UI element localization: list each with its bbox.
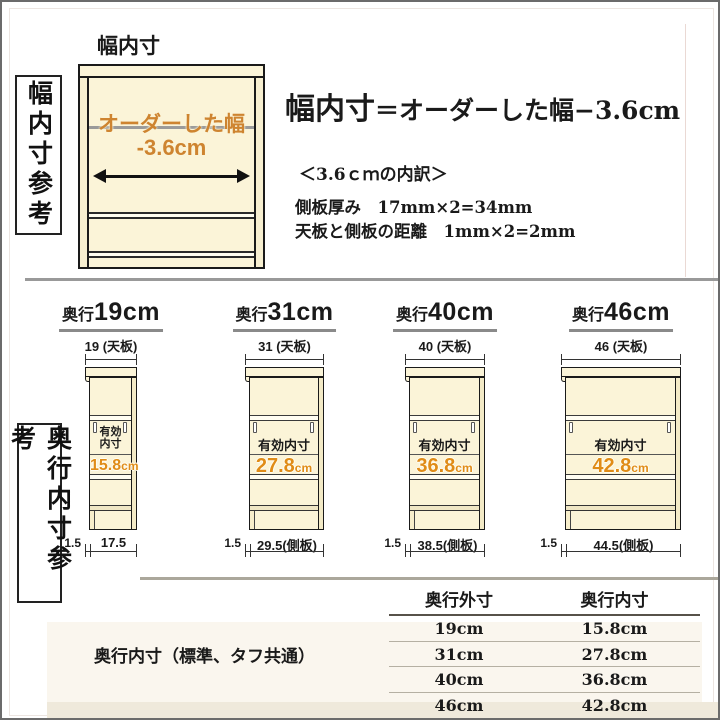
cabinet-title-prefix: 奥行 <box>236 307 268 324</box>
shelf <box>566 415 675 421</box>
cabinet-title-size: 31cm <box>268 298 334 326</box>
shelf <box>566 474 675 480</box>
bottom-dimension: 1.5 29.5(側板) <box>245 534 324 556</box>
top-board <box>85 367 137 377</box>
table-cell: 40cm <box>389 667 529 693</box>
base-front-strip <box>566 511 571 529</box>
front-gap-value: 1.5 <box>216 536 241 550</box>
top-section-right-line <box>685 24 686 277</box>
value: 15.8 <box>90 457 121 474</box>
dim-tick <box>561 544 562 557</box>
bottom-dim-line <box>85 551 137 552</box>
bottom-board <box>410 505 479 511</box>
bottom-dim-line <box>405 551 485 552</box>
depth-cabinet-31cm: 奥行31cm 31 (天板) 有効内寸 27.8cm 1.5 29.5(側板) <box>245 298 324 556</box>
dim-tick <box>136 544 137 557</box>
breakdown-heading: ＜3.6ｃｍの内訳＞ <box>299 160 448 185</box>
width-reference-side-label: 幅内寸参考 <box>15 75 62 235</box>
table-cell: 19cm <box>389 616 529 642</box>
back-panel <box>479 378 484 529</box>
top-board <box>405 367 485 377</box>
bottom-dimension: 1.5 17.5 <box>85 534 137 556</box>
top-dim-tick <box>85 354 86 365</box>
dim-tick <box>405 544 406 557</box>
top-board-dim-label: 19 (天板) <box>85 336 138 355</box>
front-cabinet-top-board <box>80 66 263 78</box>
cabinet-body: 有効内寸 36.8cm <box>409 377 485 530</box>
cabinet-title-prefix: 奥行 <box>572 307 604 324</box>
effective-inner-label: 有効内寸 <box>250 435 318 454</box>
shelf-peg-icon <box>310 422 314 433</box>
front-cabinet-shelf-band-1 <box>89 212 254 219</box>
table-cell: 36.8cm <box>529 667 700 693</box>
front-gap-value: 1.5 <box>56 536 81 550</box>
table-header-inner-depth: 奥行内寸 <box>529 586 700 616</box>
top-dim-tick <box>405 354 406 365</box>
cabinet-title-prefix: 奥行 <box>62 307 94 324</box>
shelf-peg-icon <box>253 422 257 433</box>
bottom-board <box>566 505 675 511</box>
furniture-spec-sheet: 幅内寸参考 幅内寸 オーダーした幅 -3.6cm 幅内寸＝オーダーした幅−3.6… <box>0 0 720 720</box>
cabinet-title: 奥行40cm <box>393 298 497 332</box>
cabinet-title-prefix: 奥行 <box>396 307 428 324</box>
shelf-peg-icon <box>667 422 671 433</box>
cabinet-title-size: 46cm <box>604 298 670 326</box>
double-arrow <box>93 169 250 183</box>
top-dim-tick <box>561 354 562 365</box>
top-board <box>561 367 681 377</box>
table-separator <box>140 577 719 580</box>
unit: cm <box>121 459 138 473</box>
depth-reference-side-label: 奥行内寸参考 <box>17 423 62 603</box>
table-cell: 27.8cm <box>529 642 700 668</box>
breakdown-top-board-line: 天板と側板の距離 1mm×2=2mm <box>295 218 575 242</box>
front-cabinet-shelf-band-2 <box>89 251 254 258</box>
front-gap-value: 1.5 <box>532 536 557 550</box>
ordered-width-label: オーダーした幅 <box>89 108 254 138</box>
shelf-peg-icon <box>471 422 475 433</box>
shelf-peg-icon <box>569 422 573 433</box>
back-panel <box>318 378 323 529</box>
shelf <box>410 474 479 480</box>
top-board-dim-label: 31 (天板) <box>258 336 311 355</box>
bottom-board <box>250 505 318 511</box>
top-dim-line <box>405 359 485 360</box>
shelf <box>250 415 318 421</box>
top-dim-tick <box>245 354 246 365</box>
top-dim-tick <box>323 354 324 365</box>
dim-tick <box>680 544 681 557</box>
base-front-strip <box>250 511 255 529</box>
effective-inner-label: 有効内寸 <box>410 435 479 454</box>
effective-inner-label: 有効 内寸 <box>90 426 131 450</box>
top-dim-tick <box>484 354 485 365</box>
depth-cabinet-19cm: 奥行19cm 19 (天板) 有効 内寸 15.8cm 1.5 17.5 <box>85 298 137 556</box>
dim-tick <box>250 544 251 557</box>
top-dim-line <box>561 359 681 360</box>
breakdown-side-board-line: 側板厚み 17mm×2=34mm <box>295 194 532 218</box>
base-front-strip <box>90 511 95 529</box>
formula-rhs: オーダーした幅−3.6cm <box>399 96 680 125</box>
front-cabinet-right-side-board <box>254 78 263 267</box>
cabinet-title: 奥行46cm <box>569 298 673 332</box>
depth-cabinet-40cm: 奥行40cm 40 (天板) 有効内寸 36.8cm 1.5 38.5(側板) <box>405 298 485 556</box>
section-separator <box>25 278 719 281</box>
dim-tick <box>85 544 86 557</box>
front-view-cabinet-diagram: オーダーした幅 -3.6cm <box>78 64 265 269</box>
shelf-peg-icon <box>413 422 417 433</box>
table-cell: 15.8cm <box>529 616 700 642</box>
cabinet-body: 有効内寸 27.8cm <box>249 377 324 530</box>
dim-tick <box>245 544 246 557</box>
table-cell: 31cm <box>389 642 529 668</box>
cabinet-title: 奥行31cm <box>233 298 337 332</box>
table-header-outer-depth: 奥行外寸 <box>389 586 529 616</box>
bottom-board <box>90 505 131 511</box>
cabinet-title-size: 19cm <box>94 298 160 326</box>
side-board-depth-value: 17.5 <box>90 535 137 550</box>
dim-tick <box>566 544 567 557</box>
arrow-line <box>103 175 240 178</box>
unit: cm <box>295 461 312 475</box>
cabinet-body: 有効内寸 42.8cm <box>565 377 681 530</box>
top-dim-line <box>85 359 137 360</box>
top-dim-tick <box>136 354 137 365</box>
effective-inner-value: 15.8cm <box>90 457 131 475</box>
top-board <box>245 367 324 377</box>
dim-tick <box>410 544 411 557</box>
effective-inner-label: 有効内寸 <box>566 435 675 454</box>
cabinet-title: 奥行19cm <box>59 298 163 332</box>
top-dim-line <box>245 359 324 360</box>
dim-tick <box>90 544 91 557</box>
back-panel <box>675 378 680 529</box>
shelf <box>250 474 318 480</box>
table-cell: 46cm <box>389 693 529 719</box>
shelf <box>410 415 479 421</box>
base-front-strip <box>410 511 415 529</box>
inner-dim-line <box>90 454 131 455</box>
front-cabinet-left-side-board <box>80 78 89 267</box>
bottom-dimension: 1.5 38.5(側板) <box>405 534 485 556</box>
bottom-dim-line <box>245 551 324 552</box>
front-gap-value: 1.5 <box>376 536 401 550</box>
width-formula: 幅内寸＝オーダーした幅−3.6cm <box>285 84 680 128</box>
depth-table-caption: 奥行内寸（標準、タフ共通） <box>94 642 315 667</box>
depth-dimension-table: 奥行外寸 奥行内寸 19cm 15.8cm 31cm 27.8cm 40cm 3… <box>389 586 700 718</box>
dim-tick <box>484 544 485 557</box>
top-board-dim-label: 46 (天板) <box>595 336 648 355</box>
unit: cm <box>455 461 472 475</box>
top-dim-tick <box>680 354 681 365</box>
bottom-dimension: 1.5 44.5(側板) <box>561 534 681 556</box>
top-board-dim-label: 40 (天板) <box>419 336 472 355</box>
formula-lhs: 幅内寸 <box>285 92 375 127</box>
shelf <box>90 415 131 421</box>
front-cabinet-title: 幅内寸 <box>97 30 160 60</box>
table-cell: 42.8cm <box>529 693 700 719</box>
shelf <box>90 474 131 480</box>
cabinet-title-size: 40cm <box>428 298 494 326</box>
cabinet-body: 有効 内寸 15.8cm <box>89 377 137 530</box>
ordered-width-value: -3.6cm <box>89 135 254 161</box>
bottom-dim-line <box>561 551 681 552</box>
unit: cm <box>631 461 648 475</box>
front-cabinet-interior: オーダーした幅 -3.6cm <box>89 78 254 267</box>
formula-equals: ＝ <box>375 96 399 125</box>
depth-cabinet-46cm: 奥行46cm 46 (天板) 有効内寸 42.8cm 1.5 44.5(側板) <box>561 298 681 556</box>
dim-tick <box>323 544 324 557</box>
arrow-right-head-icon <box>237 169 250 183</box>
back-panel <box>131 378 136 529</box>
